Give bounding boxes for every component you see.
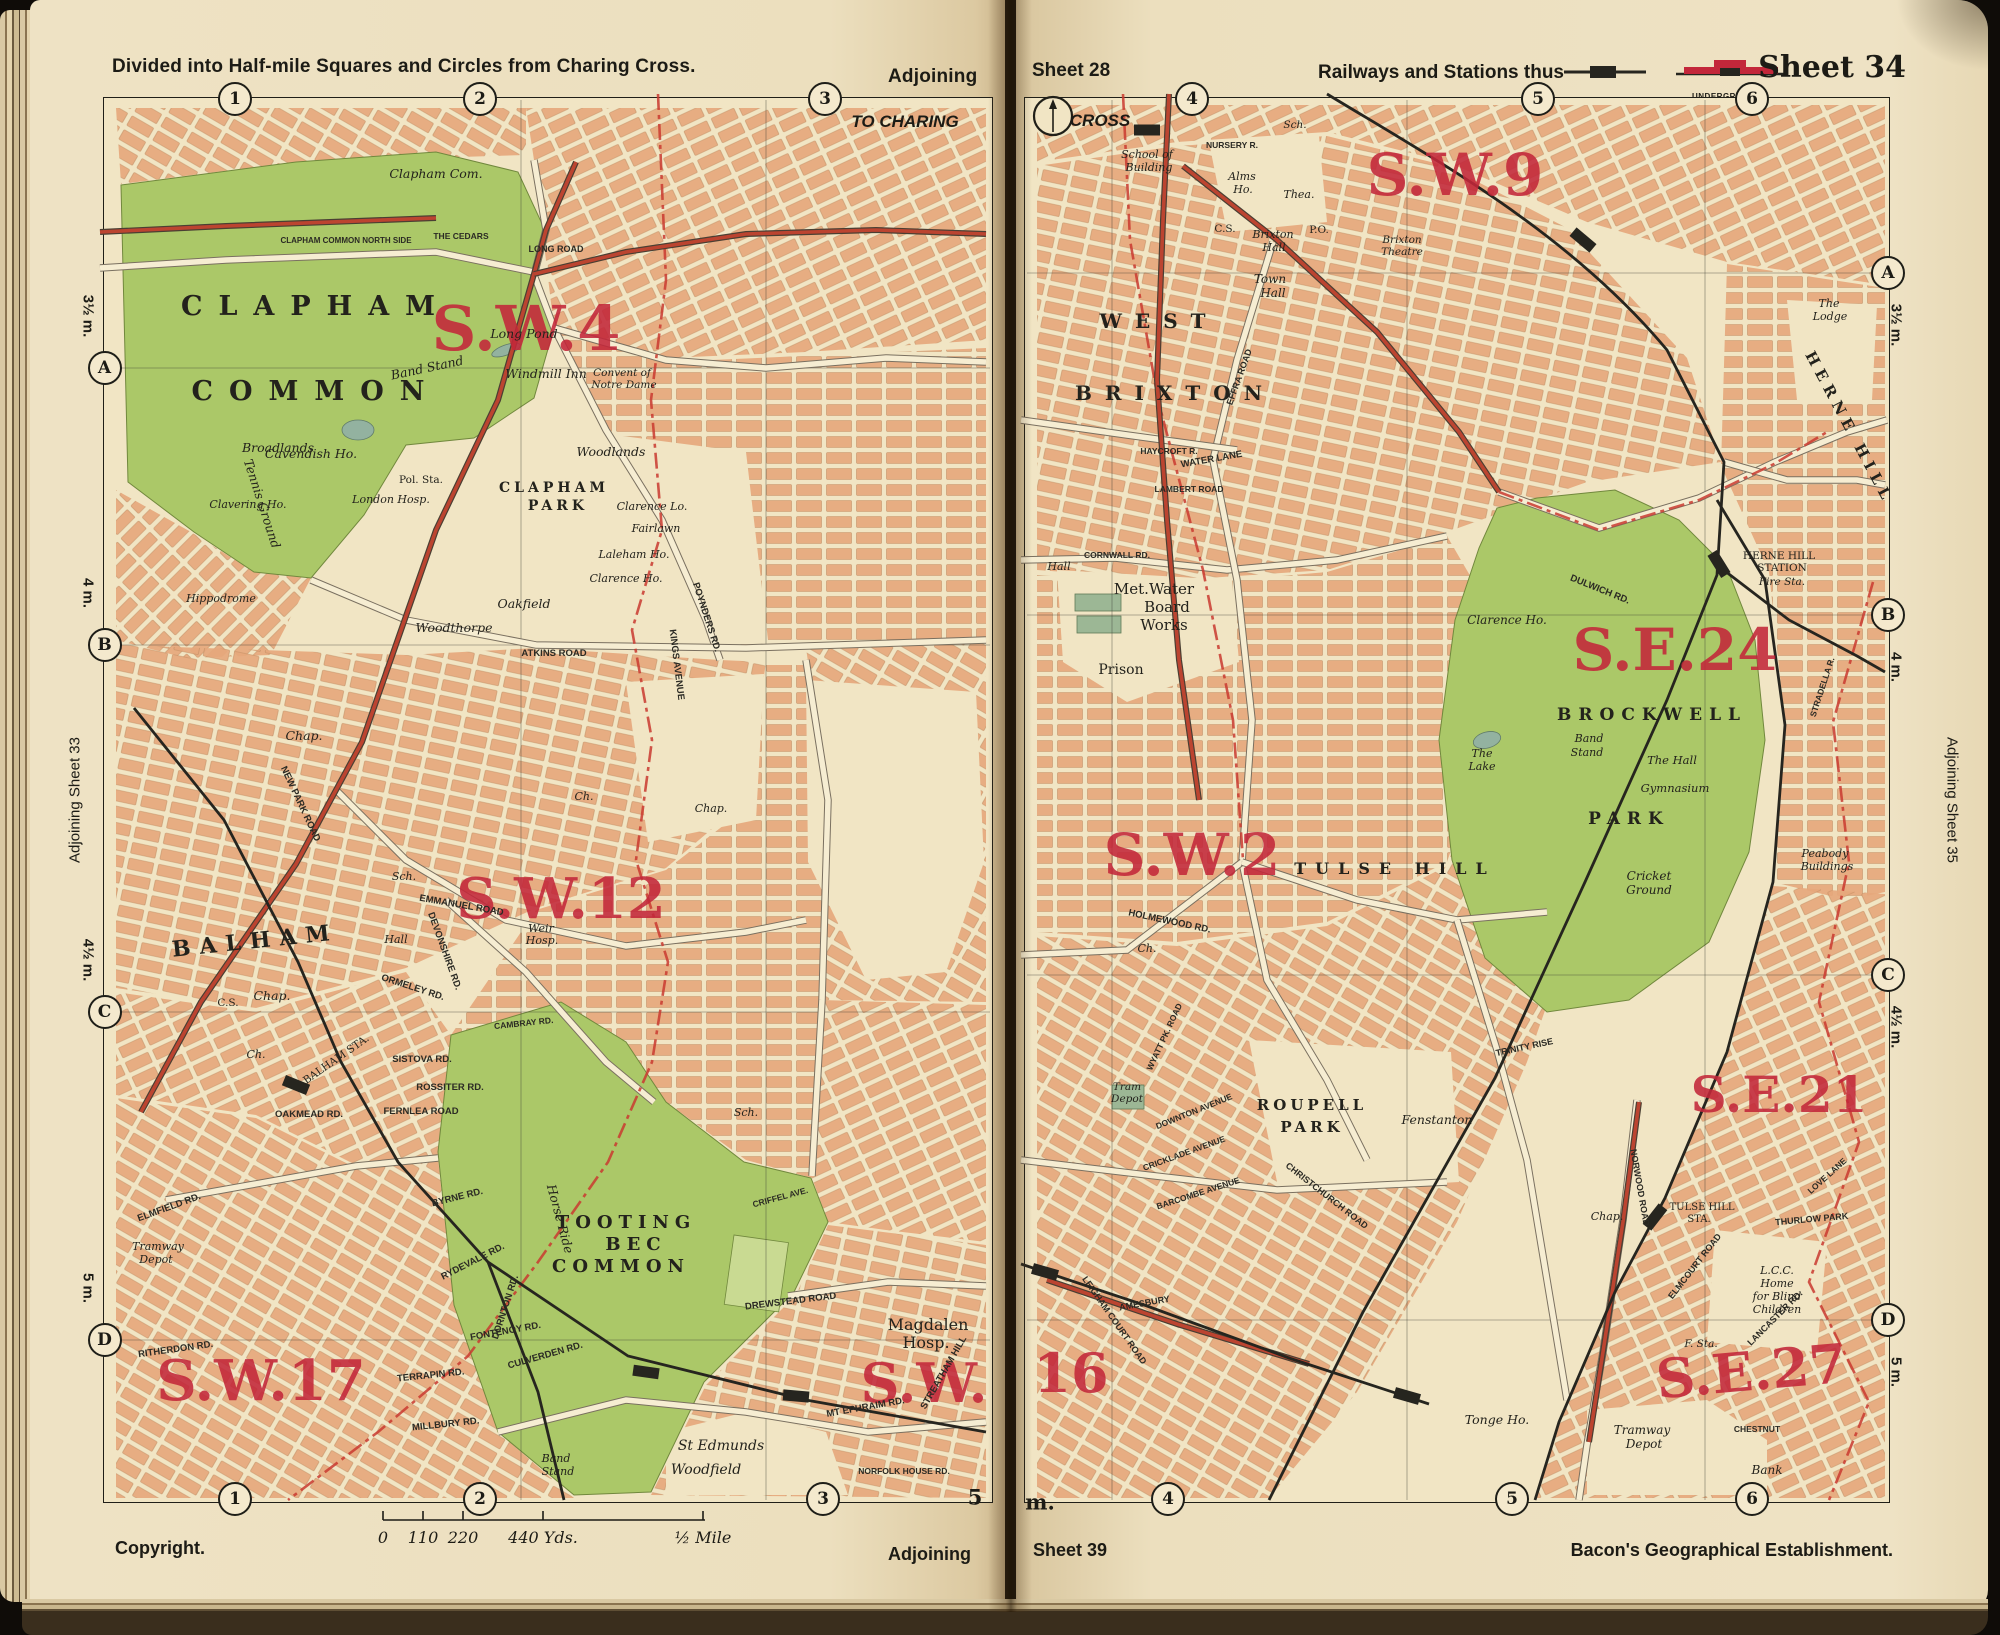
map-label: Gymnasium	[1641, 781, 1710, 795]
left-header-adjoining: Adjoining	[888, 66, 977, 88]
right-page: Sheet 28 Railways and Stations thus UNDE…	[1016, 0, 1988, 1612]
map-label: BROCKWELL	[1557, 705, 1747, 725]
map-label: Ch.	[247, 1048, 266, 1061]
map-label: Prison	[1098, 662, 1143, 678]
map-label: Ch.	[575, 790, 594, 803]
map-label: Depot	[138, 1253, 173, 1266]
map-label: Tram	[1113, 1081, 1141, 1093]
grid-column-number: 4	[1151, 1482, 1185, 1516]
map-label: NORFOLK HOUSE RD.	[858, 1466, 950, 1476]
right-footer-credit: Bacon's Geographical Establishment.	[1571, 1540, 1893, 1561]
left-page: Divided into Half-mile Squares and Circl…	[30, 0, 1005, 1612]
map-label: Cavendish Ho.	[265, 446, 357, 461]
map-label: 16	[1033, 1341, 1108, 1405]
map-label: COMMON	[192, 376, 441, 407]
grid-row-letter: B	[1871, 598, 1905, 632]
grid-row-distance: 4 m.	[80, 578, 97, 608]
map-label: CHESTNUT	[1734, 1424, 1781, 1434]
map-label: The	[1819, 297, 1840, 310]
map-label: TULSE HILL	[1669, 1202, 1734, 1213]
map-label: TULSE HILL	[1294, 859, 1496, 878]
map-label: PARK	[528, 498, 588, 514]
map-label: Ground	[1626, 883, 1672, 897]
map-label: Hosp.	[525, 934, 558, 947]
grid-column-number: 6	[1735, 82, 1769, 116]
grid-column-number: 1	[218, 82, 252, 116]
map-label: Tramway	[132, 1240, 185, 1253]
map-label: CLAPHAM	[181, 291, 451, 322]
scale-tick-label: 0	[378, 1528, 388, 1547]
map-label: Peabody	[1801, 847, 1850, 860]
map-label: F. Sta.	[1683, 1338, 1717, 1350]
grid-column-number: 1	[218, 1482, 252, 1516]
grid-column-number: 5	[1521, 82, 1555, 116]
map-label: Thea.	[1284, 188, 1315, 201]
grid-row-distance: 3½ m.	[1888, 304, 1905, 347]
map-label: HERNE HILL	[1743, 550, 1815, 562]
page-stack-bottom-edge	[22, 1599, 1988, 1635]
map-label: Hall	[383, 933, 408, 946]
grid-column-number: 3	[808, 82, 842, 116]
map-label: STATION	[1757, 562, 1807, 574]
map-label: L.C.C.	[1759, 1264, 1794, 1277]
right-map-svg: S.W.9S.W.2S.E.24S.E.21S.E.2716WESTBRIXTO…	[1027, 100, 1887, 1500]
map-label: CLAPHAM	[499, 480, 609, 496]
grid-column-number: 5	[1495, 1482, 1529, 1516]
map-label: COMMON	[552, 1256, 690, 1277]
map-label: Works	[1140, 616, 1187, 634]
map-label: ROSSITER RD.	[416, 1082, 484, 1093]
map-label: Woodthorpe	[415, 620, 492, 635]
grid-row-letter: C	[88, 995, 122, 1029]
map-label: for Blind	[1752, 1290, 1802, 1303]
map-label: Children	[1753, 1303, 1801, 1316]
map-label: Band	[541, 1452, 571, 1465]
station-block	[783, 1389, 810, 1402]
map-label: Chap.	[1591, 1210, 1624, 1223]
map-label: PARK	[1588, 809, 1670, 829]
map-label: Ch.	[1138, 942, 1157, 955]
map-label: Fairlawn	[631, 522, 681, 535]
grid-row-distance: 5 m.	[80, 1273, 97, 1303]
grid-column-number: 2	[463, 82, 497, 116]
underground-symbol-core	[1720, 68, 1740, 76]
map-label: Woodfield	[671, 1462, 741, 1478]
map-label: Windmill Inn	[505, 366, 587, 381]
map-label: Clavering Ho.	[209, 498, 286, 511]
map-label: Met.Water	[1114, 580, 1195, 598]
grid-column-number: 4	[1175, 82, 1209, 116]
sheet-number: Sheet 34	[1758, 50, 1906, 85]
map-label: Town	[1254, 272, 1286, 286]
map-label: CLAPHAM COMMON NORTH SIDE	[280, 236, 412, 245]
map-label: STA.	[1687, 1214, 1710, 1225]
map-label: S.E.24	[1572, 616, 1777, 684]
map-label: ROUPELL	[1257, 1096, 1367, 1114]
map-label: P.O.	[1309, 224, 1329, 236]
map-label: Chap.	[253, 988, 290, 1003]
map-label: Laleham Ho.	[598, 548, 670, 561]
right-side-sheet-label: Adjoining Sheet 35	[1944, 737, 1961, 863]
grid-column-number: 2	[463, 1482, 497, 1516]
map-label: Chap.	[285, 728, 322, 743]
map-label: Stand	[1571, 746, 1604, 759]
left-footer-copyright: Copyright.	[115, 1538, 205, 1559]
charing-cross-direction-label: CROSS	[1070, 111, 1130, 131]
map-label: Tonge Ho.	[1465, 1412, 1530, 1427]
map-label: Stand	[542, 1465, 575, 1478]
frame-corner-label: 5	[968, 1485, 983, 1510]
railway-legend-text: Railways and Stations thus	[1318, 62, 1564, 84]
map-label: S.W.9	[1367, 141, 1544, 209]
grid-row-letter: A	[1871, 256, 1905, 290]
map-label: Oakfield	[497, 596, 550, 611]
map-label: Hall	[1261, 241, 1286, 254]
map-label: Sch.	[392, 870, 416, 883]
grid-row-distance: 3½ m.	[80, 295, 97, 338]
map-label: ATKINS ROAD	[521, 648, 586, 659]
map-label: C.S.	[217, 997, 238, 1009]
open-ground	[626, 674, 764, 842]
map-label: Fenstanton	[1401, 1112, 1473, 1127]
map-label: S.W.17	[156, 1348, 366, 1414]
left-footer-adjoining: Adjoining	[888, 1544, 971, 1565]
grid-row-distance: 5 m.	[1888, 1357, 1905, 1387]
reservoir	[1077, 616, 1121, 633]
grid-row-letter: A	[88, 351, 122, 385]
right-header-sheet-ref: Sheet 28	[1032, 60, 1110, 82]
map-label: Building	[1125, 161, 1173, 174]
map-label: NURSERY R.	[1206, 140, 1258, 150]
map-label: Cricket	[1627, 869, 1672, 883]
map-label: Fire Sta.	[1758, 576, 1805, 588]
map-label: PARK	[1280, 1118, 1343, 1136]
left-side-sheet-label: Adjoining Sheet 33	[67, 737, 84, 863]
map-label: Clapham Com.	[389, 166, 482, 181]
map-label: Clarence Ho.	[1467, 613, 1547, 627]
grid-row-letter: D	[1871, 1303, 1905, 1337]
map-label: Convent of	[593, 367, 653, 379]
map-label: Depot	[1625, 1437, 1663, 1451]
map-label: The	[1472, 747, 1493, 760]
map-label: S.E.21	[1691, 1065, 1868, 1124]
grid-column-number: 3	[806, 1482, 840, 1516]
left-header-title: Divided into Half-mile Squares and Circl…	[112, 56, 696, 78]
map-label: Ho.	[1232, 183, 1253, 196]
map-label: The Hall	[1647, 753, 1697, 767]
map-label: Hall	[1259, 286, 1285, 300]
open-ground	[1209, 136, 1327, 232]
map-label: Depot	[1110, 1093, 1144, 1105]
map-label: Hosp.	[902, 1333, 949, 1352]
atlas-spread: Divided into Half-mile Squares and Circl…	[0, 0, 2000, 1635]
scale-tick-label: ½ Mile	[675, 1528, 732, 1547]
compass-icon	[1034, 97, 1072, 135]
scale-tick-label: 440 Yds.	[508, 1528, 578, 1547]
map-label: LONG ROAD	[529, 244, 584, 254]
map-label: Tramway	[1614, 1423, 1671, 1437]
grid-row-letter: C	[1871, 958, 1905, 992]
map-label: Home	[1759, 1277, 1794, 1290]
map-label: Sch.	[1283, 119, 1306, 131]
map-label: Theatre	[1381, 246, 1423, 258]
map-label: LAMBERT ROAD	[1155, 484, 1224, 494]
grid-row-distance: 4½ m.	[80, 939, 97, 982]
map-label: Sch.	[734, 1106, 758, 1119]
map-label: WEST	[1098, 309, 1218, 333]
map-label: HAYCROFT R.	[1140, 446, 1197, 456]
grid-row-letter: D	[88, 1323, 122, 1357]
map-label: Band	[1574, 732, 1604, 745]
map-label: Brixton	[1251, 228, 1293, 241]
map-label: S.W.2	[1104, 821, 1281, 889]
map-label: Clarence Ho.	[589, 572, 662, 585]
page-stack-left-edge	[0, 10, 34, 1602]
map-label: TOOTING	[556, 1212, 696, 1233]
charing-cross-direction-label: TO CHARING	[851, 112, 958, 132]
map-label: BEC	[605, 1234, 666, 1255]
map-label: OAKMEAD RD.	[275, 1109, 343, 1120]
map-label: Hall	[1046, 560, 1071, 573]
map-label: Alms	[1227, 170, 1256, 183]
built-up-block	[812, 1000, 986, 1242]
map-label: S.W.12	[456, 866, 666, 932]
map-label: CORNWALL RD.	[1084, 550, 1150, 560]
left-map-svg: S.W.4S.W.12S.W.17S.W.CLAPHAMCOMMONBALHAM…	[106, 100, 990, 1500]
pond	[342, 420, 374, 440]
map-label: Lake	[1467, 760, 1496, 773]
station-symbol-icon	[1590, 66, 1616, 78]
right-map-frame: S.W.9S.W.2S.E.24S.E.21S.E.2716WESTBRIXTO…	[1024, 97, 1890, 1503]
scale-tick-label: 110	[408, 1528, 439, 1547]
map-label: Clarence Lo.	[617, 500, 688, 513]
map-label: BRIXTON	[1075, 381, 1275, 405]
map-label: Lodge	[1812, 310, 1848, 323]
map-label: St Edmunds	[678, 1438, 764, 1454]
map-label: Long Pond	[489, 326, 557, 341]
frame-corner-label: m.	[1025, 1490, 1055, 1515]
map-label: Buildings	[1800, 860, 1854, 873]
map-label: THE CEDARS	[433, 231, 489, 241]
grid-row-distance: 4 m.	[1888, 652, 1905, 682]
map-label: Hippodrome	[185, 592, 256, 605]
map-label: Chap.	[695, 802, 728, 815]
map-label: FERNLEA ROAD	[383, 1106, 458, 1117]
scale-tick-label: 220	[448, 1528, 479, 1547]
map-label: C.S.	[1214, 223, 1235, 235]
grid-row-letter: B	[88, 628, 122, 662]
map-label: Magdalen	[888, 1315, 969, 1334]
grid-column-number: 6	[1735, 1482, 1769, 1516]
map-label: Woodlands	[577, 444, 646, 459]
map-label: London Hosp.	[351, 493, 430, 506]
map-label: School of	[1121, 148, 1175, 161]
map-label: SISTOVA RD.	[392, 1054, 451, 1065]
grid-row-distance: 4½ m.	[1888, 1006, 1905, 1049]
map-label: Brixton	[1381, 234, 1422, 246]
right-footer-sheet-ref: Sheet 39	[1033, 1540, 1107, 1561]
map-label: Pol. Sta.	[399, 474, 443, 486]
map-label: Board	[1144, 598, 1190, 616]
map-label: Bank	[1751, 1463, 1783, 1477]
left-map-frame: S.W.4S.W.12S.W.17S.W.CLAPHAMCOMMONBALHAM…	[103, 97, 993, 1503]
station-block	[1134, 125, 1160, 136]
map-label: Notre Dame	[590, 379, 656, 391]
